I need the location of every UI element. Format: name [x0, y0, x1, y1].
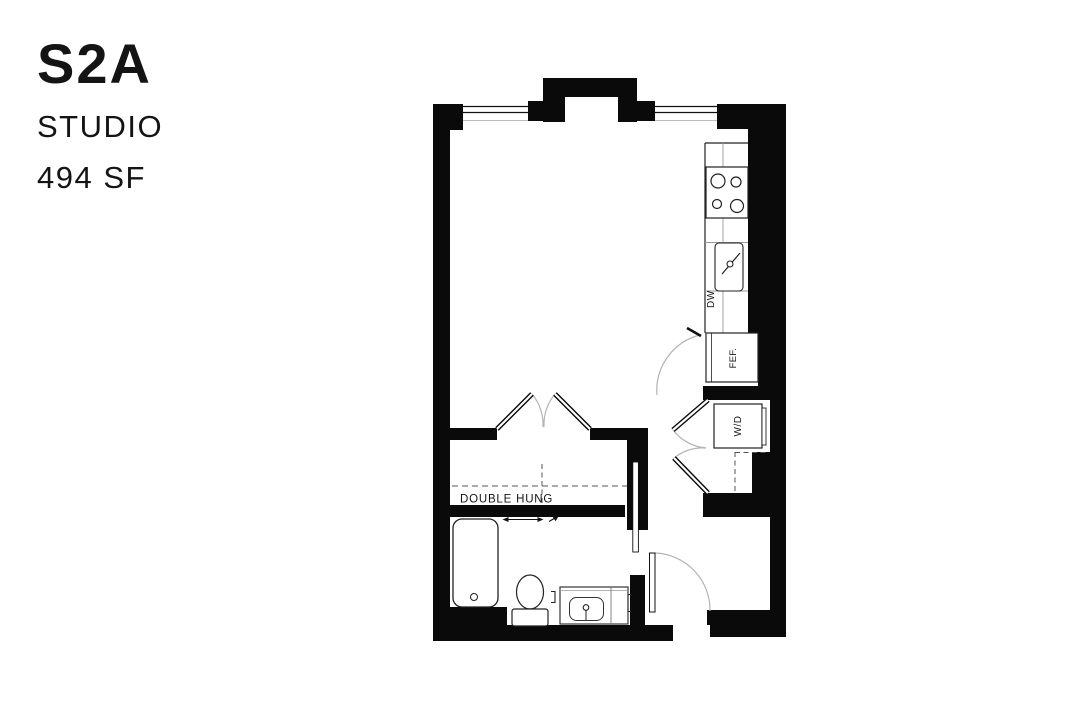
wall-closet-top-left: [433, 428, 497, 440]
label-dishwasher: DW: [706, 290, 717, 308]
wall-right-kitchen: [748, 129, 786, 333]
floor-plan-drawing: DW FEF. W/D: [0, 0, 1080, 720]
towel-bar-left: [551, 592, 555, 603]
plan-area: 494 SF: [37, 162, 146, 193]
bathtub: [453, 519, 498, 607]
entry-door: [650, 553, 711, 612]
wall-bottom-right: [707, 610, 770, 625]
wall-left: [433, 104, 450, 641]
wall-right-wd: [770, 400, 786, 452]
wall-under-tub: [448, 607, 507, 625]
toilet: [512, 575, 548, 626]
wall-bath-stub: [630, 575, 645, 625]
wall-closet-top-right: [590, 428, 648, 440]
wall-bottom-right-step: [710, 625, 786, 637]
wall-niche: [565, 97, 618, 122]
wall-closet-bottom: [433, 505, 625, 517]
wall-bump-step-right: [636, 101, 655, 121]
wall-bump-step-left: [528, 101, 544, 121]
wall-wd-bottom: [703, 493, 770, 517]
plan-code: S2A: [37, 36, 152, 92]
label-closet-rod: DOUBLE HUNG: [460, 494, 553, 506]
window-right: [655, 107, 717, 121]
vanity-sink: [551, 587, 632, 624]
wall-top-right-corner: [717, 104, 786, 129]
window-left: [463, 107, 528, 121]
wall-top-left-corner: [433, 104, 463, 130]
fridge-door-swing: [657, 328, 701, 395]
floor-plan-page: S2A STUDIO 494 SF: [0, 0, 1080, 720]
slide-arrows: [503, 516, 559, 522]
wall-bath-bottom: [433, 625, 673, 641]
label-washer-dryer: W/D: [733, 416, 744, 437]
bathroom-pocket-door: [633, 462, 639, 552]
label-refrigerator: FEF.: [728, 348, 739, 369]
cooktop: [706, 167, 748, 218]
closet-french-doors: [497, 394, 590, 429]
wall-right-fridge: [758, 333, 786, 386]
kitchen-sink: [715, 243, 743, 291]
wd-bifold-doors: [673, 400, 708, 493]
wall-right-entry: [770, 517, 786, 637]
wall-wd-top: [703, 386, 786, 400]
plan-type: STUDIO: [37, 111, 163, 142]
